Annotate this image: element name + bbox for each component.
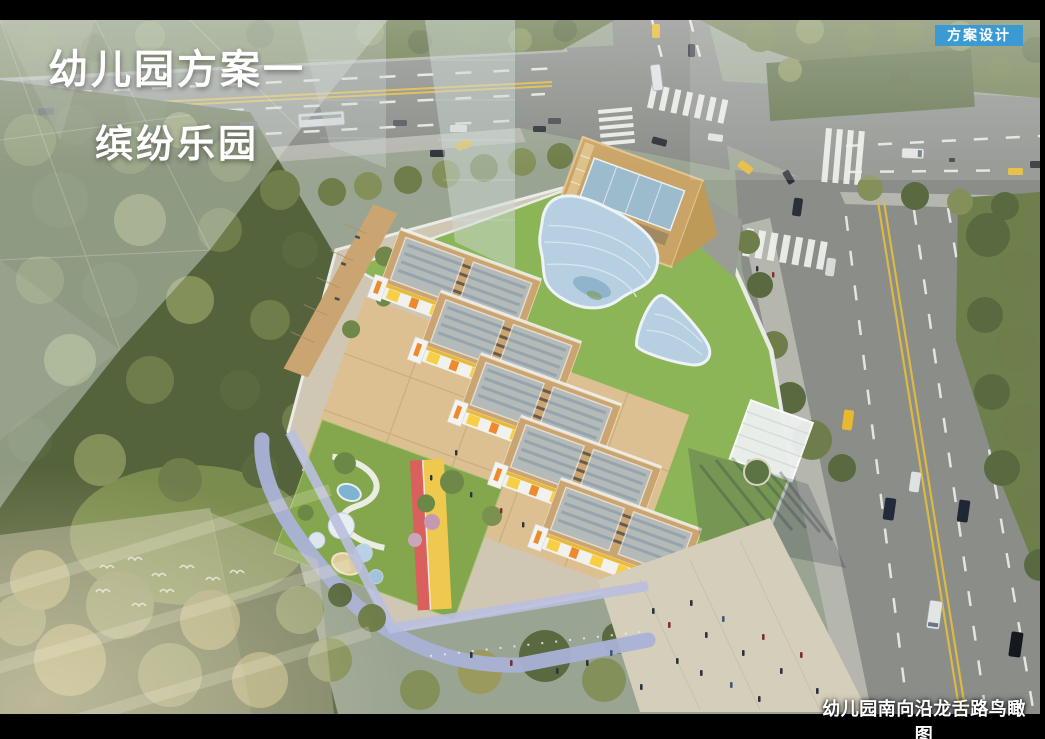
scheme-design-badge: 方案设计 <box>935 25 1023 46</box>
slide-title: 幼儿园方案一 缤纷乐园 <box>48 50 306 164</box>
title-line2: 缤纷乐园 <box>48 126 306 164</box>
title-line1: 幼儿园方案一 <box>48 50 306 90</box>
view-caption: 幼儿园南向沿龙舌路鸟瞰图 <box>818 695 1030 739</box>
presentation-slide: 幼儿园方案一 缤纷乐园 方案设计 幼儿园南向沿龙舌路鸟瞰图 <box>0 0 1045 739</box>
